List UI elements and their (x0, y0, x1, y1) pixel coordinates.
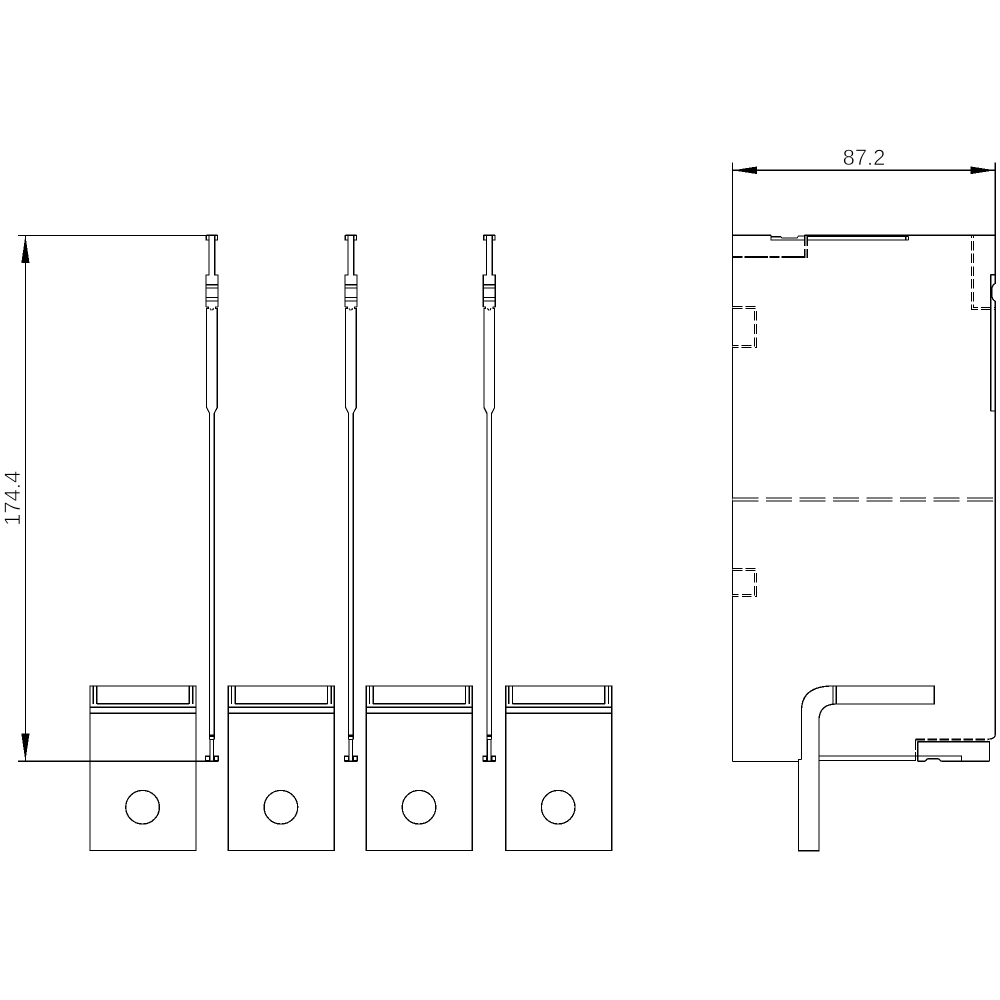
svg-text:174.4: 174.4 (0, 471, 25, 526)
svg-text:87.2: 87.2 (843, 145, 886, 170)
